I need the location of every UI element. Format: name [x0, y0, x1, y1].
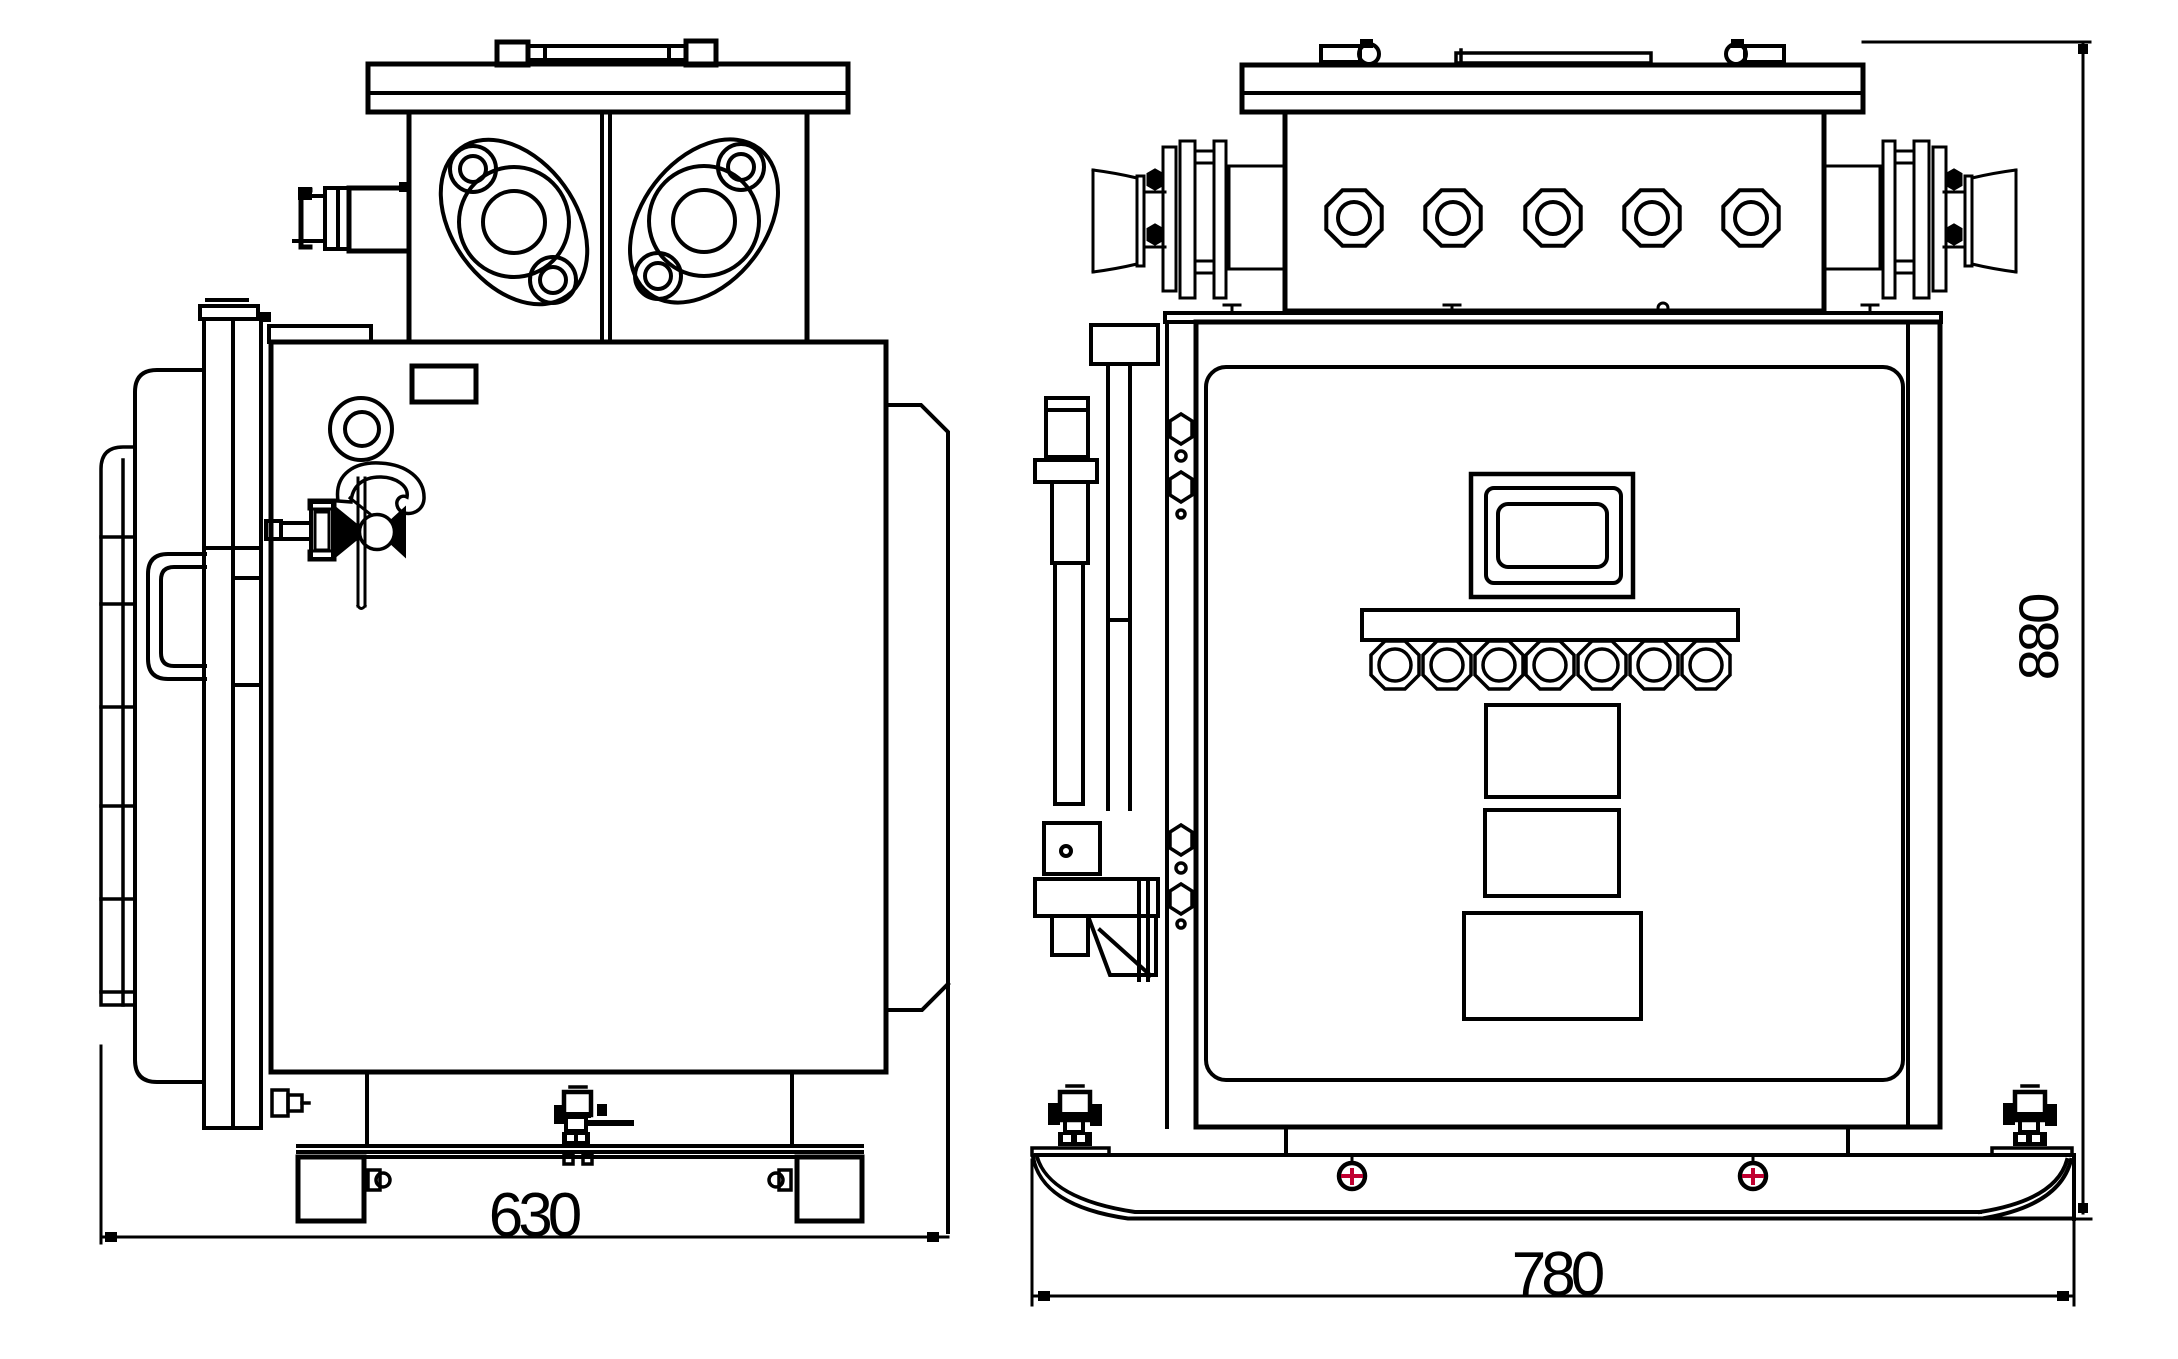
- svg-text:880: 880: [2007, 595, 2070, 680]
- svg-text:630: 630: [489, 1181, 581, 1250]
- svg-text:780: 780: [1512, 1240, 1604, 1309]
